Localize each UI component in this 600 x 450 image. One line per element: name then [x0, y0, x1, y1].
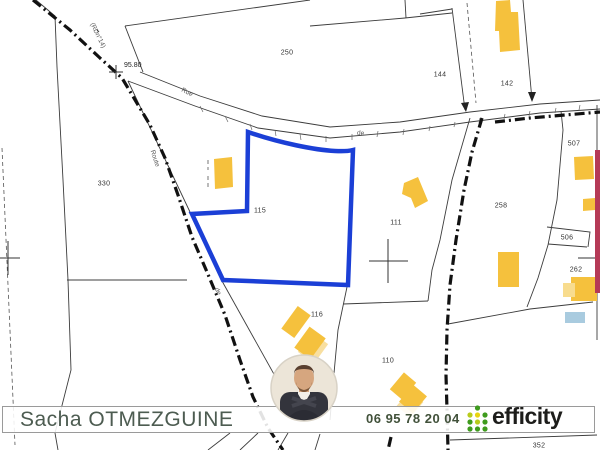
cadastral-map-page: 250 144 142 330 115 111 258 507 506 262 …	[0, 0, 600, 450]
efficity-dots-icon	[464, 404, 491, 434]
agent-phone: 06 95 78 20 04	[366, 411, 460, 426]
building-507b	[583, 198, 595, 211]
parcel-label-250: 250	[281, 50, 294, 57]
building-142	[495, 0, 520, 52]
efficity-logo: efficity	[492, 403, 562, 430]
parcel-label-115: 115	[254, 208, 266, 215]
parcel-label-144: 144	[434, 72, 447, 79]
road-label-de: de	[357, 130, 365, 137]
parcel-label-330: 330	[98, 181, 111, 188]
parcel-label-111: 111	[390, 220, 402, 227]
building-507	[574, 156, 594, 180]
elevation-label: 95.80	[124, 62, 142, 69]
pool	[565, 312, 585, 323]
parcel-label-506: 506	[561, 235, 574, 242]
building-115	[214, 157, 233, 189]
parcel-label-142: 142	[501, 81, 514, 88]
agent-name: Sacha OTMEZGUINE	[20, 408, 233, 432]
parcel-label-258: 258	[495, 203, 508, 210]
parcel-label-110: 110	[382, 358, 394, 365]
building-258	[498, 252, 519, 287]
survey-cross-icon	[0, 30, 600, 283]
highlighted-parcel-outline	[192, 132, 353, 285]
agent-photo	[270, 354, 338, 422]
parcel-label-262: 262	[570, 267, 583, 274]
map-edge-strip	[595, 150, 600, 293]
buildings	[214, 0, 597, 413]
building-111	[402, 177, 428, 208]
building-262-annex	[563, 283, 575, 297]
parcel-label-352: 352	[533, 443, 546, 450]
parcel-label-116: 116	[311, 312, 323, 319]
parcel-label-507: 507	[568, 141, 581, 148]
